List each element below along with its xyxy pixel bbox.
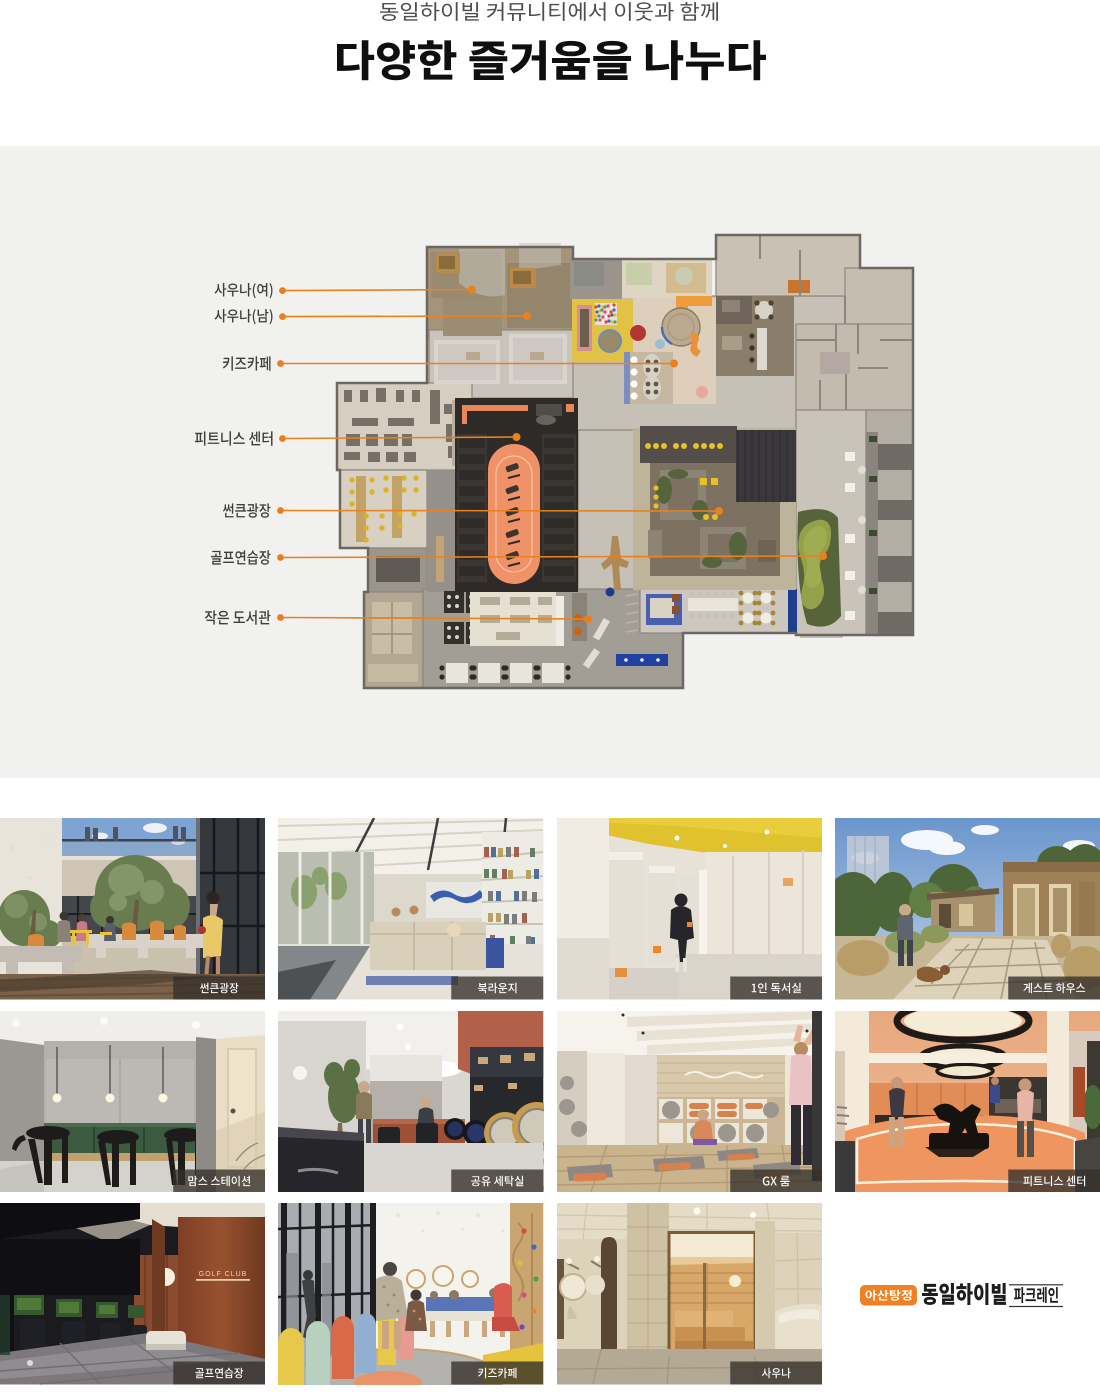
svg-text:GOLF CLUB: GOLF CLUB: [199, 1271, 248, 1278]
